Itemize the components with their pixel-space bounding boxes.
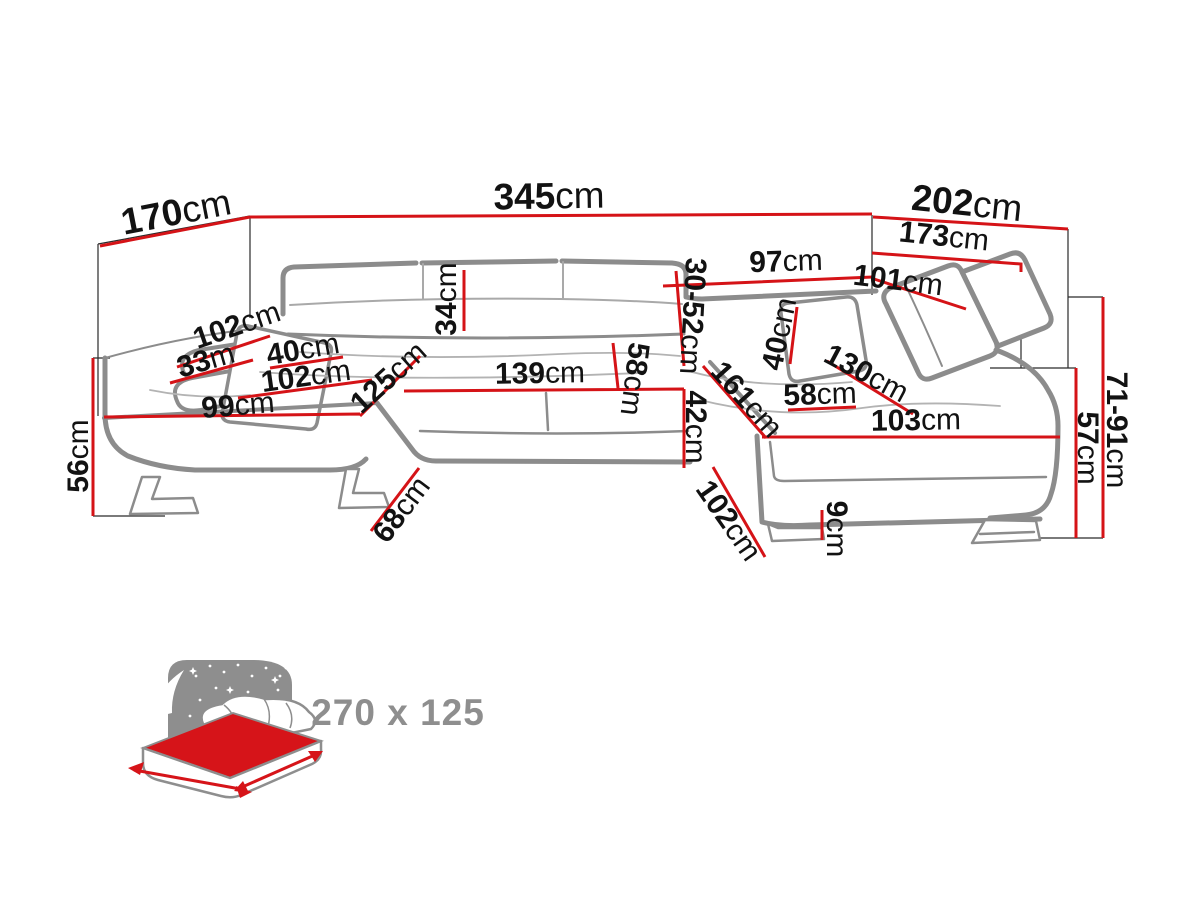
dim-unit: cm (782, 244, 823, 278)
dim-unit: cm (430, 262, 463, 302)
dim-139cm: 139cm (495, 358, 586, 390)
dim-9cm: 9cm (821, 501, 851, 558)
star-icon (251, 675, 254, 678)
star-icon (247, 691, 250, 694)
dim-value: 103 (871, 404, 922, 438)
star-icon (223, 671, 226, 674)
star-icon (209, 665, 212, 668)
dim-99cm: 99cm (200, 388, 276, 424)
star-icon (195, 675, 198, 678)
dim-value: 99 (200, 389, 236, 425)
diagram-canvas (0, 0, 1200, 900)
dim-unit: cm (1100, 448, 1133, 488)
dim-unit: cm (679, 424, 712, 464)
dim-unit: cm (947, 221, 990, 258)
leg-front-right (972, 520, 1040, 543)
dim-58cm: 58cm (615, 341, 654, 417)
dim-value: 139 (495, 357, 546, 391)
dim-value: 9 (820, 501, 853, 518)
sleep-size-label: 270 x 125 (311, 692, 485, 734)
dim-unit: cm (62, 419, 95, 459)
backrest-bottom (288, 334, 684, 338)
star-icon (199, 699, 202, 702)
dim-value: 71-91 (1100, 372, 1133, 449)
dim-unit: cm (921, 403, 962, 437)
dim-value: 345 (493, 175, 555, 217)
right-arm (990, 350, 1058, 518)
star-icon (277, 689, 280, 692)
dim-unit: cm (233, 386, 276, 422)
star-icon (189, 715, 192, 718)
star-icon (265, 667, 268, 670)
sleep-function-icon (128, 660, 323, 798)
dim-value: 56 (62, 459, 95, 492)
dim-unit: cm (555, 175, 605, 217)
dim-value: 58 (619, 341, 656, 378)
dim-56cm: 56cm (64, 419, 94, 492)
dim-value: 30-52 (675, 257, 712, 335)
dim-34cm: 34cm (432, 262, 462, 335)
dim-unit: cm (309, 354, 353, 392)
dim-58cm: 58cm (783, 379, 857, 412)
dim-unit: cm (545, 356, 586, 390)
leg-front-left (130, 477, 198, 514)
right-chaise-base-seam (770, 442, 1046, 481)
star-icon (279, 675, 282, 678)
dim-value: 58 (783, 378, 818, 412)
dim-42cm: 42cm (680, 390, 710, 463)
dim-unit: cm (971, 183, 1024, 229)
dim-value: 34 (430, 302, 463, 335)
dim-value: 97 (749, 245, 784, 279)
dim-345cm: 345cm (493, 177, 605, 216)
dim-unit: cm (816, 377, 857, 411)
sofa-dimension-diagram: 170cm345cm202cm173cm97cm101cm34cm30-52cm… (0, 0, 1200, 900)
star-icon (237, 664, 240, 667)
star-icon (285, 667, 288, 670)
dim-value: 101 (851, 259, 905, 298)
dim-unit: cm (673, 334, 708, 376)
dim-value: 42 (679, 390, 712, 423)
star-icon (215, 687, 218, 690)
leg-middle-left (339, 469, 389, 508)
dim-57cm: 57cm (1072, 411, 1102, 484)
dim-unit: cm (901, 265, 945, 303)
dim-value: 173 (898, 215, 951, 253)
dim-71-91cm: 71-91cm (1101, 372, 1131, 489)
dim-103cm: 103cm (871, 405, 962, 437)
dim-97cm: 97cm (749, 246, 823, 279)
dim-30-52cm: 30-52cm (674, 257, 710, 375)
backrest-seams (290, 262, 682, 305)
dim-unit: cm (820, 517, 853, 557)
dim-unit: cm (614, 374, 652, 418)
